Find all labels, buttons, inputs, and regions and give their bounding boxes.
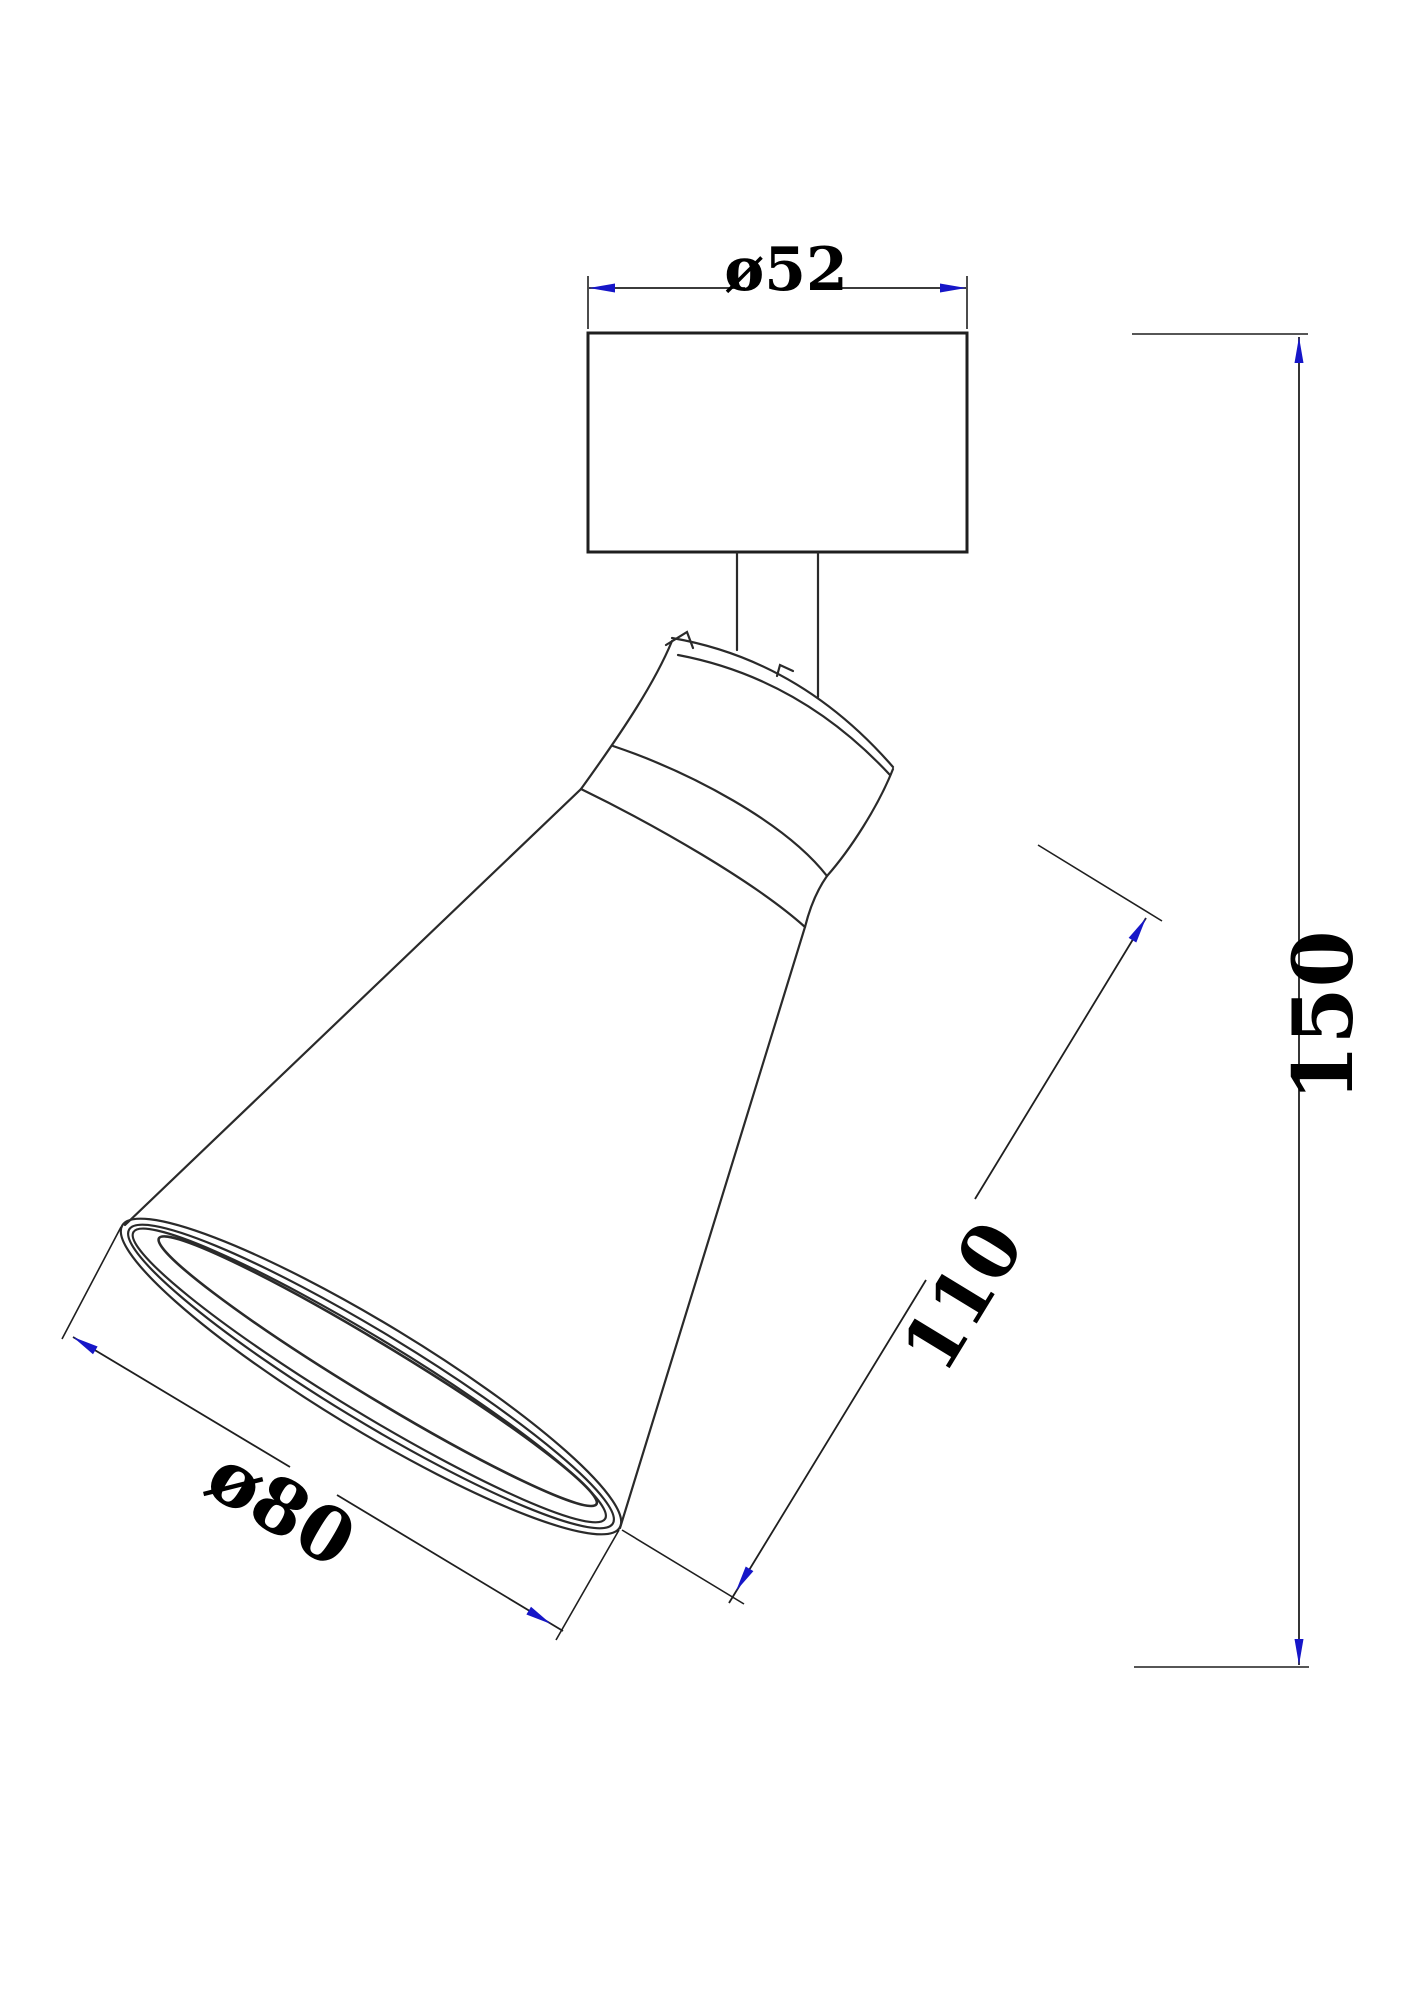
rim-inner-ellipse [114, 1200, 624, 1550]
shade-left-silhouette [125, 641, 672, 1225]
collar-bottom-edge [678, 655, 890, 775]
band-lower-edge [581, 789, 805, 927]
canopy-rect [588, 333, 967, 552]
dia52-arrow-right [940, 284, 966, 293]
dim-dia52: ø52 [588, 235, 967, 329]
dim-length-110: 110 [622, 845, 1162, 1604]
h150-arrow-bottom [1295, 1639, 1304, 1665]
dim-label-110: 110 [884, 1207, 1041, 1386]
band-upper-edge [613, 746, 827, 876]
l110-arrow-top [1129, 916, 1150, 943]
rim-middle-ellipse [106, 1192, 635, 1561]
shade-right-silhouette [620, 769, 893, 1528]
lamp-shade [95, 632, 893, 1573]
dia80-arrow-right [526, 1607, 553, 1628]
dia80-arrow-left [71, 1333, 98, 1354]
dia80-ext-right [556, 1530, 619, 1640]
drawing-sheet: ø52 150 110 [0, 0, 1414, 2000]
dim-label-dia80: ø80 [193, 1430, 371, 1585]
l110-ext-bottom [622, 1530, 744, 1604]
dim-dia80: ø80 [62, 1227, 619, 1640]
canopy [588, 333, 967, 552]
l110-ext-top [1038, 845, 1162, 921]
l110-arrow-bottom [732, 1566, 753, 1593]
dim-label-dia52: ø52 [724, 235, 848, 305]
dia80-ext-left [62, 1227, 121, 1339]
dim-label-150: 150 [1276, 930, 1372, 1101]
shade-collar [666, 632, 893, 775]
l110-dimline-upper [975, 918, 1146, 1199]
technical-drawing: ø52 150 110 [0, 0, 1414, 2000]
opening-ellipse [95, 1180, 647, 1573]
h150-arrow-top [1295, 337, 1304, 363]
shade-bands [581, 746, 827, 927]
collar-top-edge [672, 638, 893, 767]
dia52-arrow-left [589, 284, 615, 293]
dim-height-150: 150 [1132, 334, 1372, 1667]
